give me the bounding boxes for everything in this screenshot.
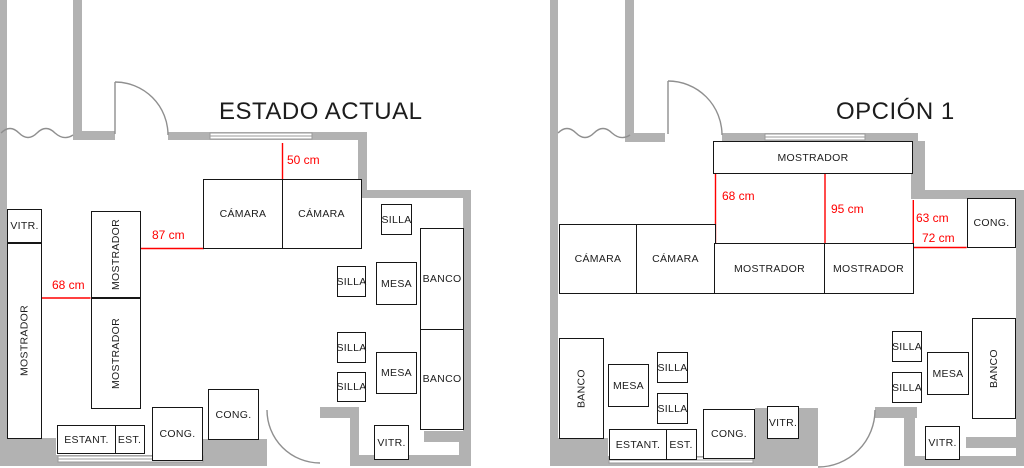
plan1-shelving-large: ESTANT. xyxy=(57,425,116,454)
plan2-chair-left-1: SILLA xyxy=(657,352,688,383)
plan1-vitrine-top-left: VITR. xyxy=(7,209,42,243)
plan2-chair-right-1: SILLA xyxy=(892,331,922,362)
plan1-bench-lower: BANCO xyxy=(420,329,464,430)
plan1-shelving-small: EST. xyxy=(115,425,145,454)
floor-plans-canvas: ESTADO ACTUAL OPCIÓN 1 VITR. MOSTRADOR M… xyxy=(0,0,1024,468)
plan1-chair-upper: SILLA xyxy=(337,266,366,297)
plan1-wall-break-line xyxy=(1,129,73,138)
plan1-chair-top: SILLA xyxy=(381,204,412,235)
plan1-vitrine-bottom: VITR. xyxy=(374,425,409,460)
plan2-vitrine-bottom-right: VITR. xyxy=(925,426,960,460)
plan2-vitrine-middle: VITR. xyxy=(767,406,799,439)
plan2-dim-95cm: 95 cm xyxy=(831,202,864,216)
plan2-bench-left: BANCO xyxy=(559,338,604,439)
plan2-freezer-top-right: CONG. xyxy=(967,198,1016,248)
plan1-cold-room-1: CÁMARA xyxy=(203,179,283,249)
plan2-table-right: MESA xyxy=(927,352,969,395)
plan2-table-left: MESA xyxy=(608,364,649,407)
plan2-title: OPCIÓN 1 xyxy=(836,98,955,126)
plan2-counter-mid-1: MOSTRADOR xyxy=(714,243,825,294)
plan1-cold-room-2: CÁMARA xyxy=(282,179,362,249)
plan1-dim-50cm: 50 cm xyxy=(287,153,320,167)
plan1-dim-68cm: 68 cm xyxy=(52,278,85,292)
plan2-chair-left-2: SILLA xyxy=(657,393,688,424)
plan1-chair-lower-2: SILLA xyxy=(337,372,366,402)
plan2-dim-68cm: 68 cm xyxy=(722,189,755,203)
plan2-wall-break-line xyxy=(558,129,630,138)
plan2-shelving-large: ESTANT. xyxy=(609,429,667,460)
plan1-freezer-1: CONG. xyxy=(152,407,203,461)
plan2-cold-room-1: CÁMARA xyxy=(559,224,637,294)
plan1-chair-lower-1: SILLA xyxy=(337,332,366,363)
plan1-counter-middle-lower: MOSTRADOR xyxy=(91,298,141,409)
plan1-counter-left: MOSTRADOR xyxy=(7,243,42,439)
plan2-dim-63cm: 63 cm xyxy=(916,211,949,225)
plan2-chair-right-2: SILLA xyxy=(892,372,922,403)
plan1-counter-middle-upper: MOSTRADOR xyxy=(91,211,141,298)
plan1-freezer-2: CONG. xyxy=(208,389,259,440)
plan2-cold-room-2: CÁMARA xyxy=(636,224,716,294)
plan1-table-lower: MESA xyxy=(376,352,417,394)
plan2-counter-mid-2: MOSTRADOR xyxy=(824,243,914,294)
plan2-counter-top: MOSTRADOR xyxy=(713,141,913,174)
plan2-dim-72cm: 72 cm xyxy=(922,231,955,245)
plan2-bench-right: BANCO xyxy=(972,318,1016,419)
plan2-freezer-bottom: CONG. xyxy=(703,409,755,459)
plan1-bench-upper: BANCO xyxy=(420,228,464,330)
plan1-dim-87cm: 87 cm xyxy=(152,228,185,242)
plan2-shelving-small: EST. xyxy=(666,429,697,460)
plan1-title: ESTADO ACTUAL xyxy=(219,98,422,126)
plan1-table-upper: MESA xyxy=(376,262,417,305)
